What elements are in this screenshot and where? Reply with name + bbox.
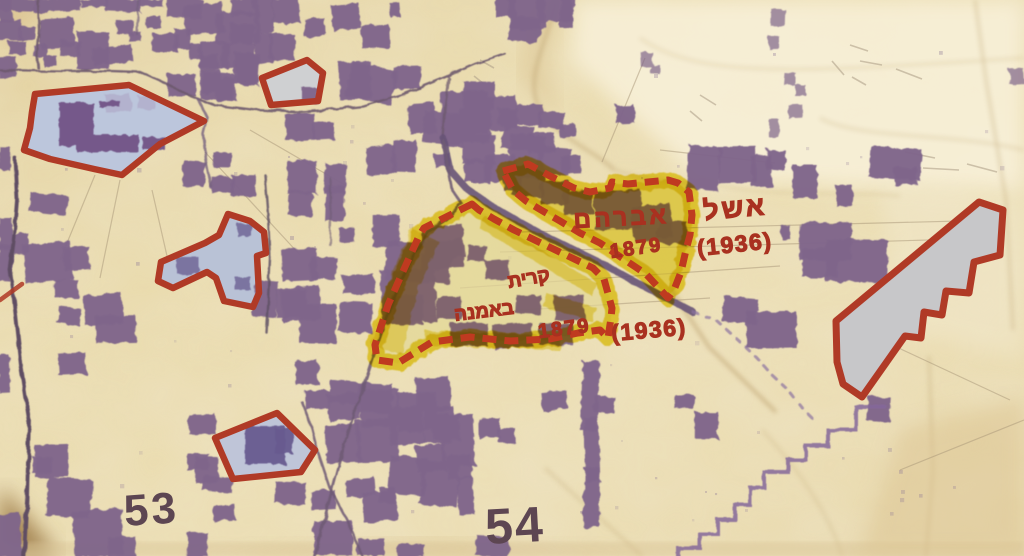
svg-text:53: 53 bbox=[122, 483, 180, 536]
svg-text:אשל: אשל bbox=[702, 191, 768, 226]
svg-text:אברהם: אברהם bbox=[573, 202, 670, 234]
svg-text:54: 54 bbox=[484, 496, 546, 555]
